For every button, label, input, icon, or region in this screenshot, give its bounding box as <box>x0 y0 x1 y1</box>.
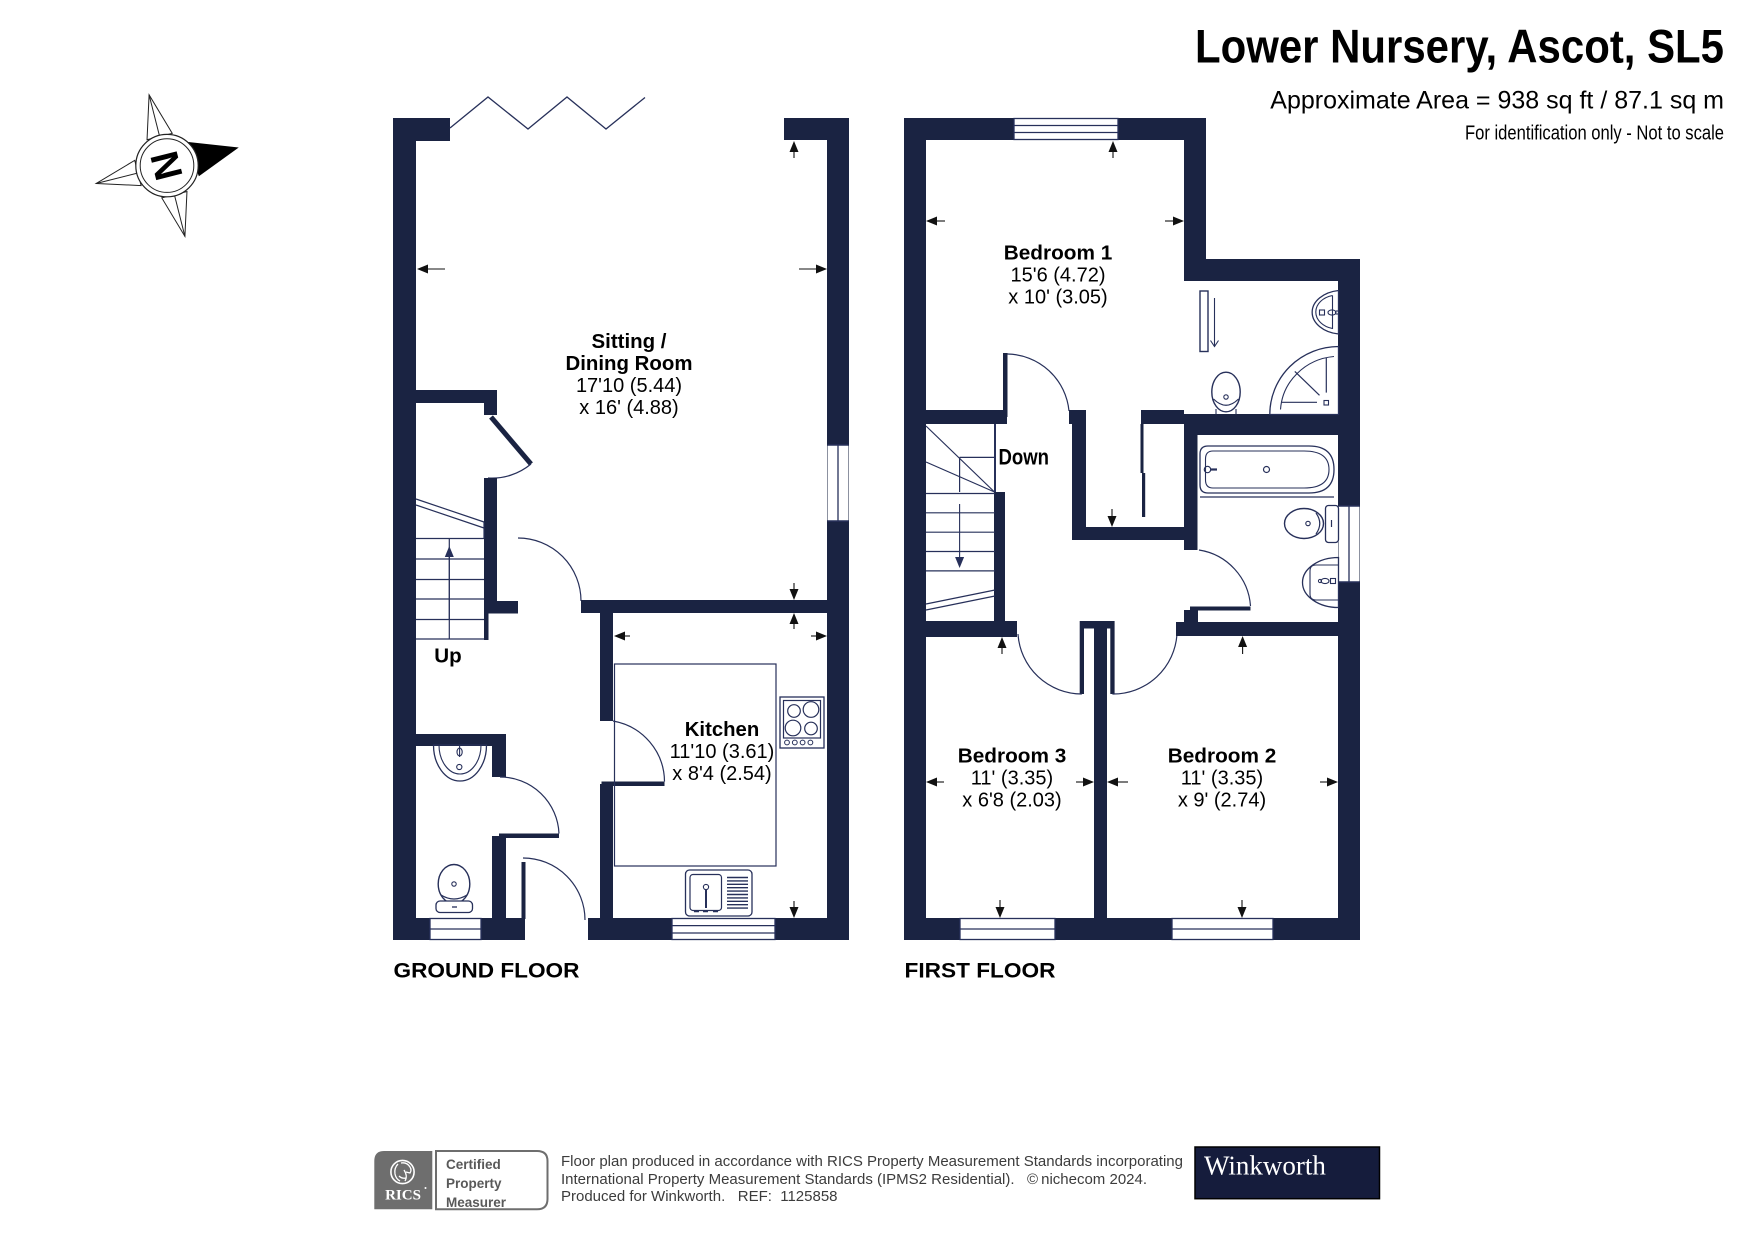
svg-text:Certified: Certified <box>446 1157 501 1172</box>
svg-text:Lower Nursery, Ascot, SL5: Lower Nursery, Ascot, SL5 <box>1195 20 1724 73</box>
svg-text:Kitchen: Kitchen <box>685 719 760 741</box>
svg-text:11'10 (3.61): 11'10 (3.61) <box>670 741 775 763</box>
svg-text:x 9' (2.74): x 9' (2.74) <box>1178 790 1266 812</box>
svg-text:Approximate Area = 938 sq ft /: Approximate Area = 938 sq ft / 87.1 sq m <box>1270 87 1724 115</box>
svg-text:Produced for Winkworth. REF:: Produced for Winkworth. REF: 1125858 <box>561 1188 838 1205</box>
svg-text:Sitting /: Sitting / <box>592 331 667 353</box>
svg-text:GROUND FLOOR: GROUND FLOOR <box>394 959 580 983</box>
svg-text:Up: Up <box>434 645 461 668</box>
svg-text:For identification only - Not: For identification only - Not to scale <box>1465 123 1724 145</box>
svg-text:Dining Room: Dining Room <box>566 353 693 375</box>
svg-text:x 6'8 (2.03): x 6'8 (2.03) <box>962 790 1061 812</box>
svg-text:Measurer: Measurer <box>446 1195 507 1210</box>
svg-text:FIRST FLOOR: FIRST FLOOR <box>905 959 1056 983</box>
svg-text:x 16' (4.88): x 16' (4.88) <box>579 397 678 419</box>
svg-text:x 10' (3.05): x 10' (3.05) <box>1008 287 1107 309</box>
svg-text:11' (3.35): 11' (3.35) <box>971 768 1053 790</box>
svg-text:15'6 (4.72): 15'6 (4.72) <box>1011 265 1106 287</box>
svg-text:11' (3.35): 11' (3.35) <box>1181 768 1263 790</box>
svg-text:International Property Measure: International Property Measurement Stand… <box>561 1171 1147 1188</box>
svg-text:Bedroom 2: Bedroom 2 <box>1168 746 1277 768</box>
svg-text:Property: Property <box>446 1176 502 1191</box>
svg-text:Floor plan produced in accorda: Floor plan produced in accordance with R… <box>561 1153 1183 1170</box>
svg-text:17'10 (5.44): 17'10 (5.44) <box>576 375 682 397</box>
svg-text:Bedroom 1: Bedroom 1 <box>1004 243 1113 265</box>
svg-text:RICS: RICS <box>385 1188 421 1204</box>
svg-text:Down: Down <box>999 445 1050 470</box>
svg-text:Bedroom 3: Bedroom 3 <box>958 746 1067 768</box>
svg-text:x 8'4 (2.54): x 8'4 (2.54) <box>672 763 771 785</box>
svg-text:Winkworth: Winkworth <box>1204 1151 1326 1181</box>
